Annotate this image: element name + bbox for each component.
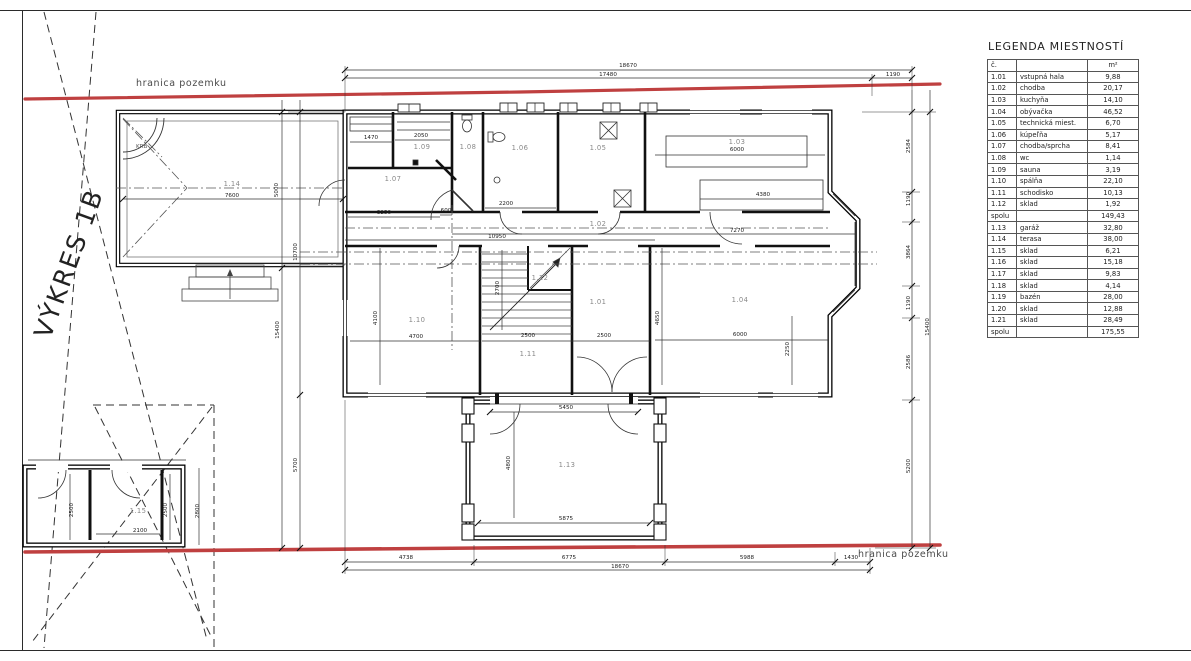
- dimension-label: 4380: [756, 192, 771, 198]
- legend-cell-name: sklad: [1017, 303, 1088, 315]
- legend-cell-number: 1.16: [988, 257, 1017, 269]
- room-label-r112: 1.12: [532, 274, 549, 282]
- sauna-stove-icon: [413, 160, 418, 165]
- dimension-label: 1190: [906, 191, 912, 206]
- legend-header-row: č. m²: [988, 60, 1139, 72]
- legend-cell-area: 10,13: [1088, 187, 1139, 199]
- toilet-icon: [493, 133, 505, 142]
- legend-row: 1.17sklad9,83: [988, 268, 1139, 280]
- legend-cell-number: 1.05: [988, 117, 1017, 129]
- legend-cell-name: vstupná hala: [1017, 71, 1088, 83]
- legend-cell-area: 175,55: [1088, 326, 1139, 338]
- legend-title: LEGENDA MIESTNOSTÍ: [988, 40, 1139, 53]
- dimension-label: 2250: [785, 341, 791, 356]
- room-label-r108: 1.08: [460, 143, 477, 151]
- room-label-r105: 1.05: [590, 144, 607, 152]
- legend-cell-name: terasa: [1017, 233, 1088, 245]
- legend-cell-number: 1.12: [988, 199, 1017, 211]
- fixtures: [350, 115, 823, 210]
- legend-cell-number: 1.20: [988, 303, 1017, 315]
- legend-row: 1.10spálňa22,10: [988, 175, 1139, 187]
- legend-row: 1.04obývačka46,52: [988, 106, 1139, 118]
- dimension-label: 5000: [274, 182, 280, 197]
- legend-row: 1.13garáž32,80: [988, 222, 1139, 234]
- legend-cell-area: 32,80: [1088, 222, 1139, 234]
- legend-row: 1.18sklad4,14: [988, 280, 1139, 292]
- legend-cell-area: 6,21: [1088, 245, 1139, 257]
- legend-cell-number: 1.01: [988, 71, 1017, 83]
- dimension-label: 17480: [599, 72, 617, 78]
- legend-cell-number: 1.15: [988, 245, 1017, 257]
- legend-cell-area: 6,70: [1088, 117, 1139, 129]
- dimension-label: 2500: [521, 333, 536, 339]
- legend-cell-name: sklad: [1017, 257, 1088, 269]
- legend-header-area: m²: [1088, 60, 1139, 72]
- legend-cell-area: 20,17: [1088, 83, 1139, 95]
- legend-row: 1.12sklad1,92: [988, 199, 1139, 211]
- toilet-icon: [463, 120, 472, 132]
- dimension-label: 10700: [293, 243, 299, 261]
- window-marks: [341, 103, 818, 399]
- dimension-label: 4738: [399, 555, 414, 561]
- legend-cell-number: 1.07: [988, 141, 1017, 153]
- legend-cell-name: kúpeľňa: [1017, 129, 1088, 141]
- legend-cell-name: garáž: [1017, 222, 1088, 234]
- legend-cell-name: spálňa: [1017, 175, 1088, 187]
- legend-cell-number: 1.14: [988, 233, 1017, 245]
- dimension-label: 3250: [377, 210, 392, 216]
- legend-cell-name: chodba: [1017, 83, 1088, 95]
- legend-cell-name: wc: [1017, 152, 1088, 164]
- dimension-label: 10950: [488, 234, 506, 240]
- dimension-label: 2100: [133, 528, 148, 534]
- legend-row: 1.09sauna3,19: [988, 164, 1139, 176]
- legend-table: č. m² 1.01vstupná hala9,881.02chodba20,1…: [987, 59, 1139, 338]
- dimension-label: 18670: [619, 63, 637, 69]
- legend-cell-number: 1.10: [988, 175, 1017, 187]
- room-label-r109: 1.09: [414, 143, 431, 151]
- legend-cell-area: 4,14: [1088, 280, 1139, 292]
- legend-cell-area: 1,14: [1088, 152, 1139, 164]
- legend-row: 1.15sklad6,21: [988, 245, 1139, 257]
- dimension-label: 5988: [740, 555, 755, 561]
- legend-cell-number: 1.18: [988, 280, 1017, 292]
- legend-row-total: spolu149,43: [988, 210, 1139, 222]
- legend-cell-area: 8,41: [1088, 141, 1139, 153]
- legend-cell-number: 1.03: [988, 94, 1017, 106]
- dimension-label: 1190: [906, 295, 912, 310]
- legend-cell-name: chodba/sprcha: [1017, 141, 1088, 153]
- legend-header-name: [1017, 60, 1088, 72]
- legend-row: 1.11schodisko10,13: [988, 187, 1139, 199]
- legend-header-number: č.: [988, 60, 1017, 72]
- legend-cell-name: sklad: [1017, 268, 1088, 280]
- legend-row: 1.07chodba/sprcha8,41: [988, 141, 1139, 153]
- legend-cell-number: 1.09: [988, 164, 1017, 176]
- legend-row: 1.03kuchyňa14,10: [988, 94, 1139, 106]
- boundary-label-top: hranica pozemku: [136, 78, 227, 89]
- legend-row: 1.05technická miest.6,70: [988, 117, 1139, 129]
- legend-row: 1.06kúpeľňa5,17: [988, 129, 1139, 141]
- dimension-label: 2050: [414, 133, 429, 139]
- dimension-label: 2700: [495, 280, 501, 295]
- room-label-r107: 1.07: [385, 175, 402, 183]
- dimension-label: 2584: [906, 138, 912, 153]
- legend-cell-name: kuchyňa: [1017, 94, 1088, 106]
- legend-row-total: spolu175,55: [988, 326, 1139, 338]
- dimension-label: 15400: [925, 318, 931, 336]
- legend-row: 1.21sklad28,49: [988, 315, 1139, 327]
- dimension-label: 2200: [499, 201, 514, 207]
- legend-cell-name: sauna: [1017, 164, 1088, 176]
- legend-cell-name: sklad: [1017, 280, 1088, 292]
- sink-icon: [494, 177, 500, 183]
- drawing-sheet: hranica pozemku hranica pozemku KRB: [0, 0, 1191, 661]
- legend-cell-area: 9,88: [1088, 71, 1139, 83]
- dimension-label: 1470: [364, 135, 379, 141]
- room-label-r114: 1.14: [224, 180, 241, 188]
- legend-row: 1.01vstupná hala9,88: [988, 71, 1139, 83]
- legend-cell-name: sklad: [1017, 315, 1088, 327]
- legend-cell-name: obývačka: [1017, 106, 1088, 118]
- room-label-r110: 1.10: [409, 316, 426, 324]
- dimension-label: 2800: [195, 503, 201, 518]
- legend-cell-number: 1.02: [988, 83, 1017, 95]
- legend-cell-name: schodisko: [1017, 187, 1088, 199]
- legend-cell-name: sklad: [1017, 245, 1088, 257]
- legend-cell-area: 149,43: [1088, 210, 1139, 222]
- dimension-label: 1190: [886, 72, 901, 78]
- legend-cell-area: 3,19: [1088, 164, 1139, 176]
- room-label-r111: 1.11: [520, 350, 537, 358]
- legend-cell-number: 1.19: [988, 291, 1017, 303]
- dimension-label: 2500: [69, 502, 75, 517]
- dimension-label: 15400: [275, 321, 281, 339]
- legend-row: 1.08wc1,14: [988, 152, 1139, 164]
- legend-cell-area: 28,49: [1088, 315, 1139, 327]
- dimension-label: 3864: [906, 244, 912, 259]
- legend-cell-name: [1017, 326, 1088, 338]
- room-label-r113: 1.13: [559, 461, 576, 469]
- legend-cell-number: spolu: [988, 210, 1017, 222]
- legend-cell-number: spolu: [988, 326, 1017, 338]
- legend-cell-number: 1.21: [988, 315, 1017, 327]
- legend-row: 1.02chodba20,17: [988, 83, 1139, 95]
- dimension-label: 600: [441, 208, 452, 214]
- legend-cell-area: 15,18: [1088, 257, 1139, 269]
- legend-cell-name: [1017, 210, 1088, 222]
- dimension-label: 2500: [597, 333, 612, 339]
- boundary-label-bottom: hranica pozemku: [858, 549, 949, 560]
- room-label-r104: 1.04: [732, 296, 749, 304]
- legend-cell-area: 14,10: [1088, 94, 1139, 106]
- room-label-r101: 1.01: [590, 298, 607, 306]
- dimension-label: 7270: [730, 228, 745, 234]
- dimension-ticks: [120, 67, 933, 573]
- room-labels: 1.01 1.02 1.03 1.04 1.05 1.06 1.07 1.08 …: [130, 138, 749, 515]
- legend-row: 1.19bazén28,00: [988, 291, 1139, 303]
- legend-cell-name: technická miest.: [1017, 117, 1088, 129]
- dimension-label: 6000: [733, 332, 748, 338]
- legend-cell-name: bazén: [1017, 291, 1088, 303]
- terrace-outline: [118, 112, 345, 301]
- room-label-r106: 1.06: [512, 144, 529, 152]
- dimension-label: 2500: [163, 502, 169, 517]
- dimension-label: 5700: [293, 457, 299, 472]
- legend-cell-area: 46,52: [1088, 106, 1139, 118]
- legend-cell-number: 1.06: [988, 129, 1017, 141]
- legend: LEGENDA MIESTNOSTÍ č. m² 1.01vstupná hal…: [987, 40, 1139, 338]
- outbuilding-walls: [25, 462, 183, 545]
- legend-cell-area: 5,17: [1088, 129, 1139, 141]
- dimension-label: 5450: [559, 405, 574, 411]
- legend-row: 1.20sklad12,88: [988, 303, 1139, 315]
- dimension-label: 6000: [730, 147, 745, 153]
- room-label-r103: 1.03: [729, 138, 746, 146]
- legend-table-body: 1.01vstupná hala9,881.02chodba20,171.03k…: [988, 71, 1139, 338]
- dimension-label: 4700: [409, 334, 424, 340]
- legend-cell-number: 1.13: [988, 222, 1017, 234]
- legend-cell-area: 22,10: [1088, 175, 1139, 187]
- legend-cell-area: 12,88: [1088, 303, 1139, 315]
- dimension-label: 7600: [225, 193, 240, 199]
- dimension-label: 5875: [559, 516, 574, 522]
- legend-cell-number: 1.17: [988, 268, 1017, 280]
- dimension-label: 4800: [506, 455, 512, 470]
- fireplace-label: KRB: [136, 144, 148, 150]
- room-label-r115: 1.15: [130, 507, 147, 515]
- sheet-title: VÝKRES 1B: [28, 185, 109, 342]
- legend-cell-number: 1.08: [988, 152, 1017, 164]
- dimension-label: 18670: [611, 564, 629, 570]
- legend-cell-area: 1,92: [1088, 199, 1139, 211]
- legend-row: 1.14terasa38,00: [988, 233, 1139, 245]
- room-label-r102: 1.02: [590, 220, 607, 228]
- legend-cell-name: sklad: [1017, 199, 1088, 211]
- legend-cell-number: 1.11: [988, 187, 1017, 199]
- legend-cell-area: 9,83: [1088, 268, 1139, 280]
- dimension-label: 2586: [906, 354, 912, 369]
- dimension-label: 1430: [844, 555, 859, 561]
- legend-cell-area: 38,00: [1088, 233, 1139, 245]
- legend-row: 1.16sklad15,18: [988, 257, 1139, 269]
- dimension-label: 4650: [655, 310, 661, 325]
- legend-cell-area: 28,00: [1088, 291, 1139, 303]
- interior-walls: [345, 112, 830, 395]
- dimension-label: 5200: [906, 458, 912, 473]
- dimension-label: 4100: [373, 310, 379, 325]
- main-house-walls: [345, 112, 858, 395]
- legend-cell-number: 1.04: [988, 106, 1017, 118]
- dimension-label: 6775: [562, 555, 577, 561]
- dimension-labels: 18670 17480 1190 7600 5000 10700 15400 5…: [69, 63, 931, 570]
